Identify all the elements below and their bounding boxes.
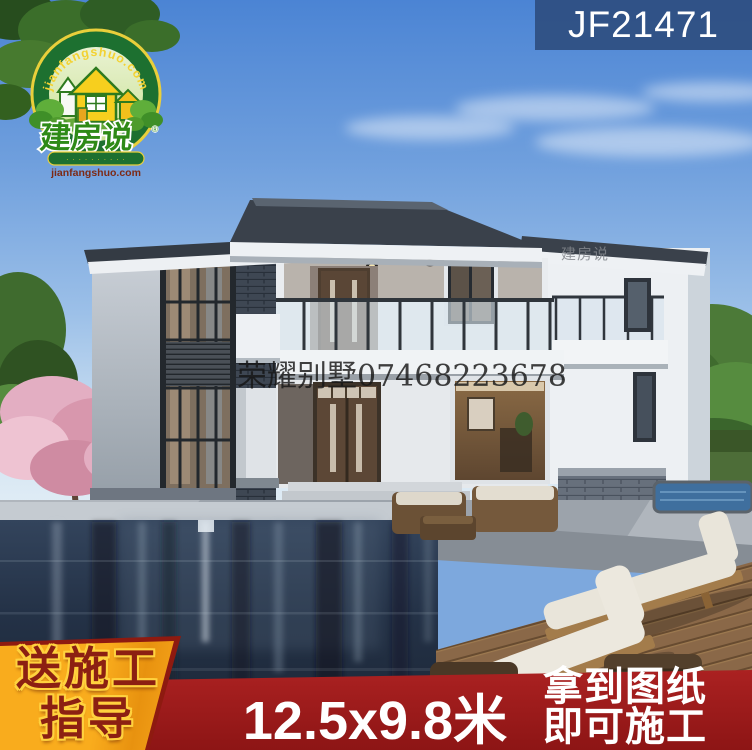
logo-trademark: ® [152,125,158,134]
promo-image: 建房说 荣耀别墅07468223678 JF21471 jianfangshuo… [0,0,752,750]
logo-brand-text: 建房说 [39,120,134,155]
right-slogan-line1: 拿到图纸 [543,667,707,707]
gift-banner: 送施工 指导 [0,636,190,750]
gift-text: 送施工 指导 [0,644,176,744]
product-code: JF21471 [568,4,719,46]
logo-website: jianfangshuo.com [50,167,141,178]
dimensions-text: 12.5x9.8米 [200,680,550,750]
right-slogan: 拿到图纸 即可施工 [543,667,707,747]
brand-logo: jianfangshuo.com 建房说 ® [26,28,170,178]
gift-text-line1: 送施工 [0,644,176,694]
center-watermark: 荣耀别墅07468223678 [237,351,567,395]
brand-logo-badge: jianfangshuo.com 建房说 ® [26,28,170,178]
logo-banner-text: · · · · · · · · · · [66,157,126,164]
gift-text-line2: 指导 [0,694,176,744]
product-code-band: JF21471 [535,0,752,50]
right-slogan-line2: 即可施工 [543,707,707,747]
wall-watermark: 建房说 [561,243,609,264]
